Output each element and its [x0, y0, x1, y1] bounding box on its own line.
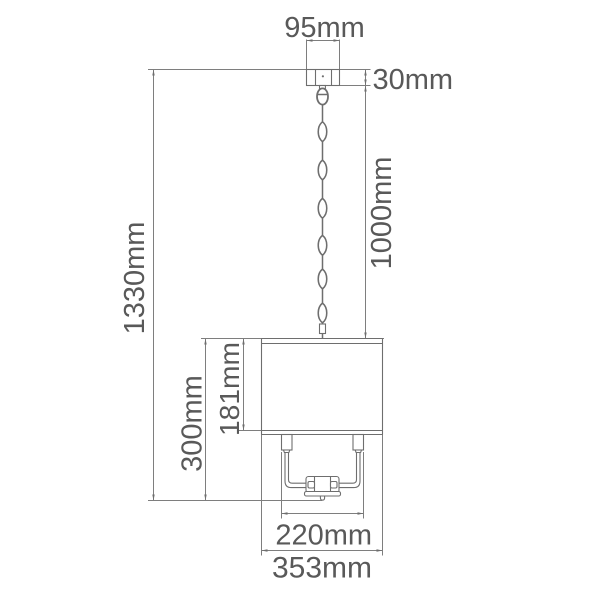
svg-text:1330mm: 1330mm: [119, 222, 151, 335]
svg-text:30mm: 30mm: [373, 64, 454, 96]
svg-text:1000mm: 1000mm: [366, 157, 398, 270]
svg-text:181mm: 181mm: [213, 342, 245, 436]
svg-text:300mm: 300mm: [177, 375, 209, 472]
svg-text:353mm: 353mm: [272, 552, 372, 585]
svg-text:95mm: 95mm: [284, 12, 365, 44]
svg-text:220mm: 220mm: [275, 520, 372, 552]
